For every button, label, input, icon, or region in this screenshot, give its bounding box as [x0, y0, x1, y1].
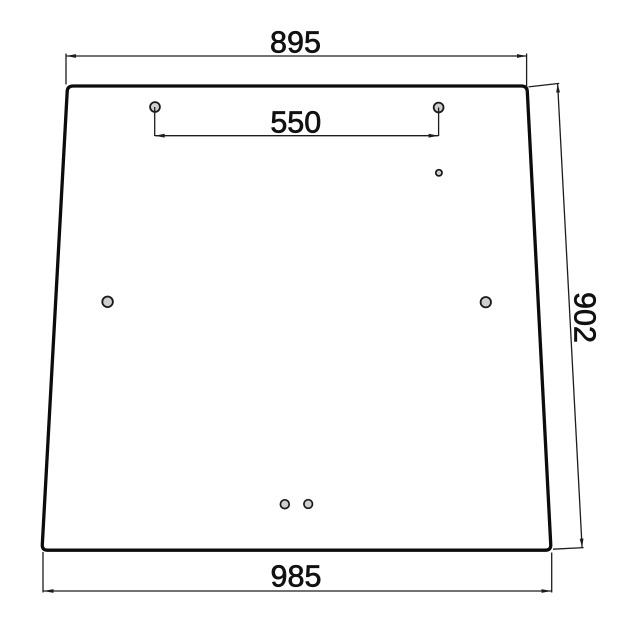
svg-text:985: 985: [271, 560, 322, 594]
svg-text:895: 895: [270, 26, 321, 60]
svg-text:550: 550: [270, 105, 321, 139]
svg-text:902: 902: [568, 292, 602, 343]
